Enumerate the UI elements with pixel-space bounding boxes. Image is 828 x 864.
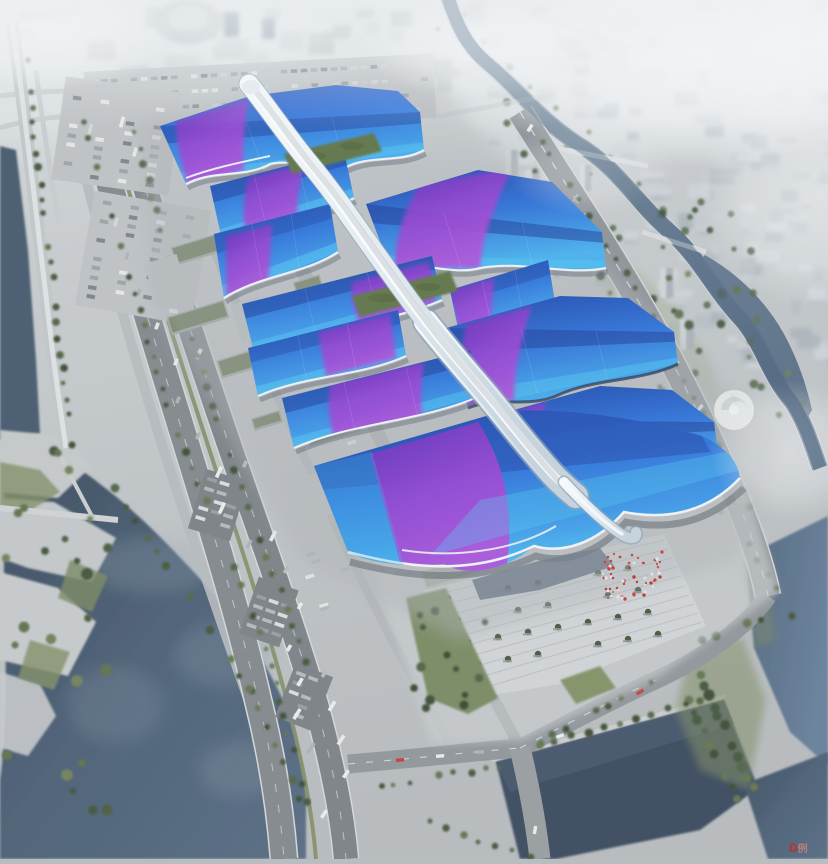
svg-text:D例: D例 — [789, 841, 808, 855]
